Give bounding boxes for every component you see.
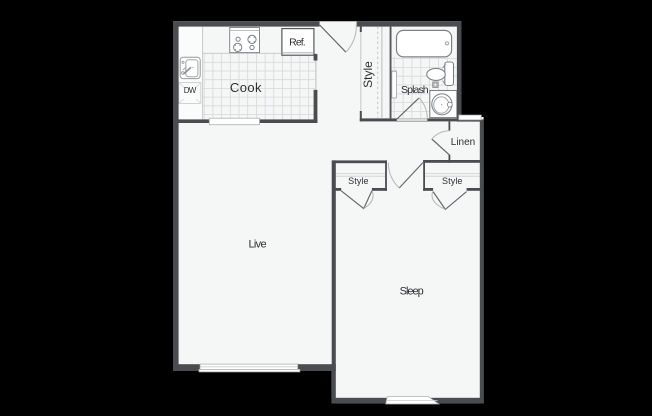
svg-text:Style: Style [442,176,463,186]
svg-text:DW: DW [184,86,197,95]
svg-text:Live: Live [249,238,267,250]
svg-text:Linen: Linen [451,137,475,148]
svg-text:Cook: Cook [230,80,262,95]
svg-text:Sleep: Sleep [400,286,424,298]
svg-text:Style: Style [348,176,369,186]
svg-text:Ref.: Ref. [289,37,305,49]
svg-text:Splash: Splash [401,84,429,96]
svg-text:Style: Style [361,61,375,88]
